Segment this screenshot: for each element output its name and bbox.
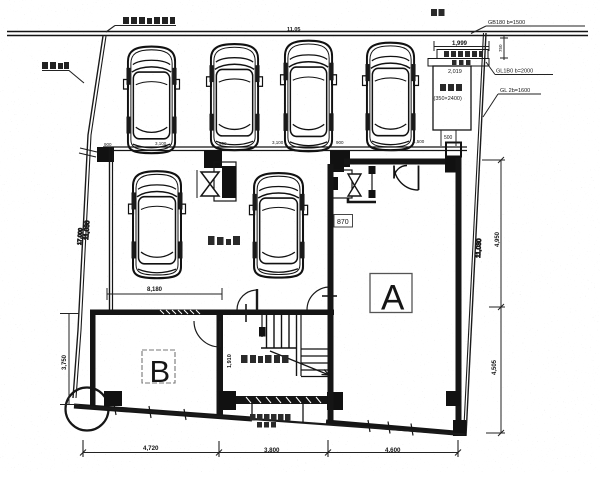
svg-text:1,500: 1,500 [413,139,425,144]
svg-text:11,05: 11,05 [287,27,300,33]
svg-text:1,999: 1,999 [452,41,468,47]
svg-text:3,100: 3,100 [155,141,167,146]
svg-text:11,030: 11,030 [475,238,483,258]
svg-text:GB180 b=1500: GB180 b=1500 [488,20,525,26]
svg-text:3,100: 3,100 [272,140,284,145]
svg-text:900: 900 [336,140,344,145]
svg-text:B: B [150,354,171,389]
svg-text:3,800: 3,800 [264,447,280,454]
svg-text:500: 500 [444,135,453,141]
svg-text:4,505: 4,505 [492,359,498,375]
svg-text:900: 900 [219,141,227,146]
svg-text:870: 870 [337,219,349,226]
svg-text:GL 2b=1600: GL 2b=1600 [500,88,530,94]
svg-text:(350×2400): (350×2400) [434,96,462,102]
svg-text:900: 900 [104,142,112,147]
svg-text:4,950: 4,950 [495,231,501,247]
svg-text:3,750: 3,750 [62,354,68,370]
svg-text:4,600: 4,600 [385,447,401,454]
svg-text:8,180: 8,180 [147,287,163,293]
svg-text:4,720: 4,720 [143,445,159,452]
svg-text:750: 750 [498,44,503,52]
svg-text:1,910: 1,910 [227,354,233,368]
svg-text:GL1B0 b=2000: GL1B0 b=2000 [496,69,533,75]
svg-text:11,030: 11,030 [83,220,91,240]
svg-text:17,000: 17,000 [77,228,84,245]
svg-text:A: A [381,279,405,318]
svg-text:2,019: 2,019 [448,69,462,75]
